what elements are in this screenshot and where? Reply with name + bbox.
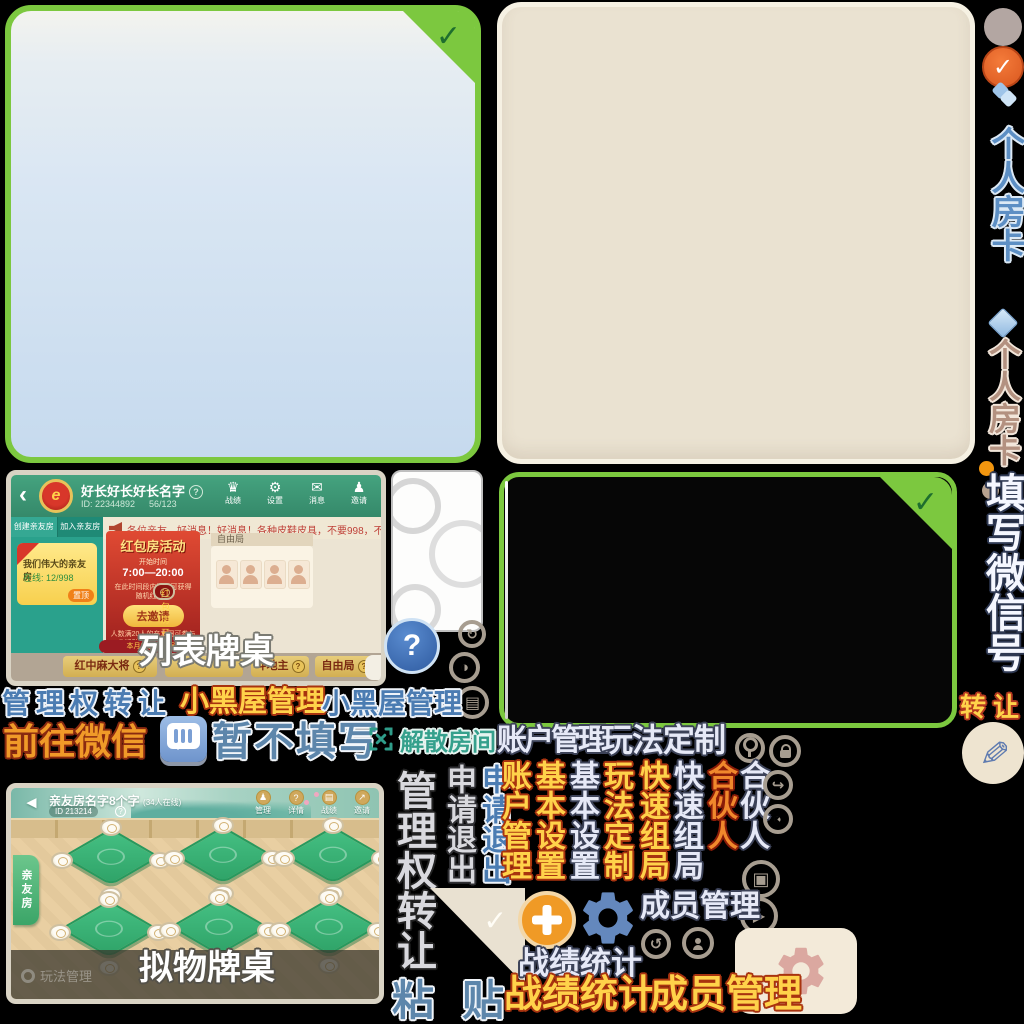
dissolve-room-icon[interactable] <box>366 724 396 754</box>
room-id: ID: 2234489256/123 <box>81 499 177 509</box>
nav-invite[interactable]: ♟邀请 <box>343 479 375 506</box>
question-icon: ? <box>289 790 304 805</box>
invite-button[interactable]: 去邀请 <box>123 605 184 627</box>
gray-circle-sprite <box>984 8 1022 46</box>
tab-create-room[interactable]: 创建亲友房 <box>11 517 58 537</box>
white-pill <box>365 655 381 680</box>
lock-ring-icon[interactable] <box>769 735 801 767</box>
label-member-manage-gold[interactable]: 成员管理 <box>650 976 802 1014</box>
nav-settings[interactable]: ⚙设置 <box>259 479 291 506</box>
vlabel-partner-red[interactable]: 合伙人 <box>702 760 736 850</box>
banner-status: 红包房开启中 <box>153 583 175 600</box>
friend-room-side-tab[interactable]: 亲友房 <box>13 855 39 925</box>
nav-details[interactable]: ?详情 <box>283 790 309 816</box>
lobby2-nav: ♟管理 ?详情 ▤战绩 ↗邀请 <box>250 790 375 816</box>
vlabel-quick-lav[interactable]: 快速组局 <box>668 760 702 880</box>
edit-pen-button[interactable]: ✎ <box>962 722 1024 784</box>
trophy-icon: ♛ <box>217 479 249 495</box>
help-circle-button[interactable]: ? <box>384 618 440 674</box>
selected-corner-badge: ✓ <box>880 477 952 549</box>
nav-messages[interactable]: ✉消息 <box>301 479 333 506</box>
label-stats-gold[interactable]: 战绩统计 <box>504 976 656 1014</box>
mahjong-table[interactable] <box>277 822 384 896</box>
add-button[interactable] <box>518 891 576 949</box>
label-member-manage-lav[interactable]: 成员管理 <box>640 892 760 922</box>
orange-check-button[interactable]: ✓ <box>982 46 1024 88</box>
my-room-card[interactable]: 我们伟大的亲友房 在线: 12/998 置顶 <box>17 543 97 605</box>
list-icon: ▤ <box>322 790 337 805</box>
pin-button[interactable]: 置顶 <box>68 589 94 602</box>
avatar-slot <box>240 560 262 589</box>
back-icon[interactable]: ‹ <box>19 481 27 509</box>
label-paste-b[interactable]: 贴 <box>462 980 504 1022</box>
free-room-label: 自由局 <box>211 533 313 546</box>
vlabel-personal-card-blue[interactable]: 个人房卡 <box>986 126 1023 262</box>
nav-records[interactable]: ♛战绩 <box>217 479 249 506</box>
banner-time: 7:00—20:00 <box>106 567 200 579</box>
gem-icon <box>987 307 1018 338</box>
chat-bubble-icon[interactable] <box>160 716 207 762</box>
half-circle-ring-icon[interactable]: ◑ <box>449 652 480 683</box>
nav-invite[interactable]: ↗邀请 <box>349 790 375 816</box>
nav-manage[interactable]: ♟管理 <box>250 790 276 816</box>
screenshot-table-lobby: ◄ 亲友房名字8个字 (34人在线) ID 213214 ? ♟管理 ?详情 ▤… <box>6 783 384 1004</box>
online-suffix: (34人在线) <box>143 798 181 807</box>
key-ring-icon[interactable] <box>735 733 765 763</box>
label-blackroom-gold[interactable]: 小黑屋管理 <box>180 688 325 717</box>
room-id: ID 213214 <box>49 806 98 817</box>
check-icon: ✓ <box>913 485 938 520</box>
vlabel-basic-lav[interactable]: 基本设置 <box>564 760 598 880</box>
lobby-header: ‹ e 好长好长好长名字? ID: 2234489256/123 ♛战绩 ⚙设置… <box>11 475 381 517</box>
gear-icon: ⚙ <box>259 479 291 495</box>
label-paste-a[interactable]: 粘 <box>392 980 434 1022</box>
vlabel-custom-gold[interactable]: 玩法定制 <box>598 760 632 880</box>
help-icon[interactable]: ? <box>115 806 126 817</box>
label-transfer[interactable]: 转让 <box>960 694 1024 720</box>
member-count: 56/123 <box>149 499 177 509</box>
share-ring-icon[interactable]: ↪ <box>763 770 793 800</box>
panel-dark-selected: ✓ <box>499 472 957 728</box>
vlabel-quick-gold[interactable]: 快速组局 <box>634 760 668 880</box>
help-icon: ? <box>292 660 305 673</box>
mahjong-table[interactable] <box>167 822 279 896</box>
play-manage-entry[interactable]: 玩法管理 <box>21 966 92 985</box>
vlabel-account-gold[interactable]: 账户管理 <box>496 760 530 880</box>
label-account-manage[interactable]: 账户管理 <box>497 726 605 756</box>
sprite-sheet: ✓ ✓ ‹ e 好长好长好长名字? ID: 2234489256/123 ♛战绩… <box>0 0 1024 1024</box>
panel-beige <box>497 2 975 464</box>
label-not-fill[interactable]: 暂不填写 <box>212 722 380 762</box>
label-dissolve-room[interactable]: 解散房间 <box>400 731 496 755</box>
vlabel-personal-card-tan[interactable]: 个人房卡 <box>986 338 1020 466</box>
gear-icon <box>21 969 35 983</box>
cream-corner-ribbon: ✓ <box>430 888 525 985</box>
help-icon[interactable]: ? <box>189 485 203 499</box>
club-emblem-icon: e <box>39 479 73 513</box>
person-ring-icon[interactable] <box>682 927 714 959</box>
room-title: 好长好长好长名字? <box>81 481 203 500</box>
back-icon[interactable]: ◄ <box>23 793 40 813</box>
caption-list-table: 列表牌桌 <box>138 635 274 669</box>
label-play-custom[interactable]: 玩法定制 <box>601 724 725 756</box>
free-room-card[interactable] <box>211 546 313 608</box>
avatar-slot <box>264 560 286 589</box>
share-icon: ↗ <box>355 790 370 805</box>
label-manage-transfer[interactable]: 管理权转让 <box>2 690 172 718</box>
online-count: 在线: 12/998 <box>23 571 74 584</box>
pie-ring-icon[interactable]: ◔ <box>763 804 793 834</box>
message-icon: ✉ <box>301 479 333 495</box>
vlabel-fill-wechat[interactable]: 填写微信号 <box>980 472 1023 672</box>
card-back-cloud <box>391 470 483 632</box>
banner-time-label: 开始时间 <box>106 557 200 567</box>
vlabel-manage-transfer[interactable]: 管理权转让 <box>391 770 435 970</box>
person-icon: ♟ <box>343 479 375 495</box>
vlabel-basic-gold[interactable]: 基本设置 <box>530 760 564 880</box>
vlabel-apply-exit-gray[interactable]: 申请退出 <box>441 764 475 884</box>
avatar-slot <box>216 560 238 589</box>
vlabel-partner-lav[interactable]: 合伙人 <box>734 760 768 850</box>
selected-corner-badge: ✓ <box>403 11 475 83</box>
screenshot-list-lobby: ‹ e 好长好长好长名字? ID: 2234489256/123 ♛战绩 ⚙设置… <box>6 470 386 686</box>
label-goto-wechat[interactable]: 前往微信 <box>3 724 147 760</box>
undo-ring-icon[interactable]: ↺ <box>641 929 671 959</box>
check-icon: ✓ <box>436 19 461 54</box>
lobby-nav: ♛战绩 ⚙设置 ✉消息 ♟邀请 <box>217 479 375 506</box>
nav-records[interactable]: ▤战绩 <box>316 790 342 816</box>
person-icon: ♟ <box>256 790 271 805</box>
caption-skeuo-table: 拟物牌桌 <box>139 951 275 985</box>
lobby-sidebar: 创建亲友房 加入亲友房 我们伟大的亲友房 在线: 12/998 置顶 <box>11 517 103 653</box>
avatar-slot <box>288 560 310 589</box>
redo-ring-icon[interactable]: ↻ <box>458 620 486 648</box>
mahjong-table[interactable] <box>55 824 167 898</box>
tab-join-room[interactable]: 加入亲友房 <box>58 517 104 537</box>
gear-blue-icon[interactable] <box>576 886 640 950</box>
banner-title: 红包房活动 <box>106 536 200 555</box>
panel-blue-selected: ✓ <box>5 5 481 463</box>
label-blackroom-blue[interactable]: 小黑屋管理 <box>322 690 462 718</box>
